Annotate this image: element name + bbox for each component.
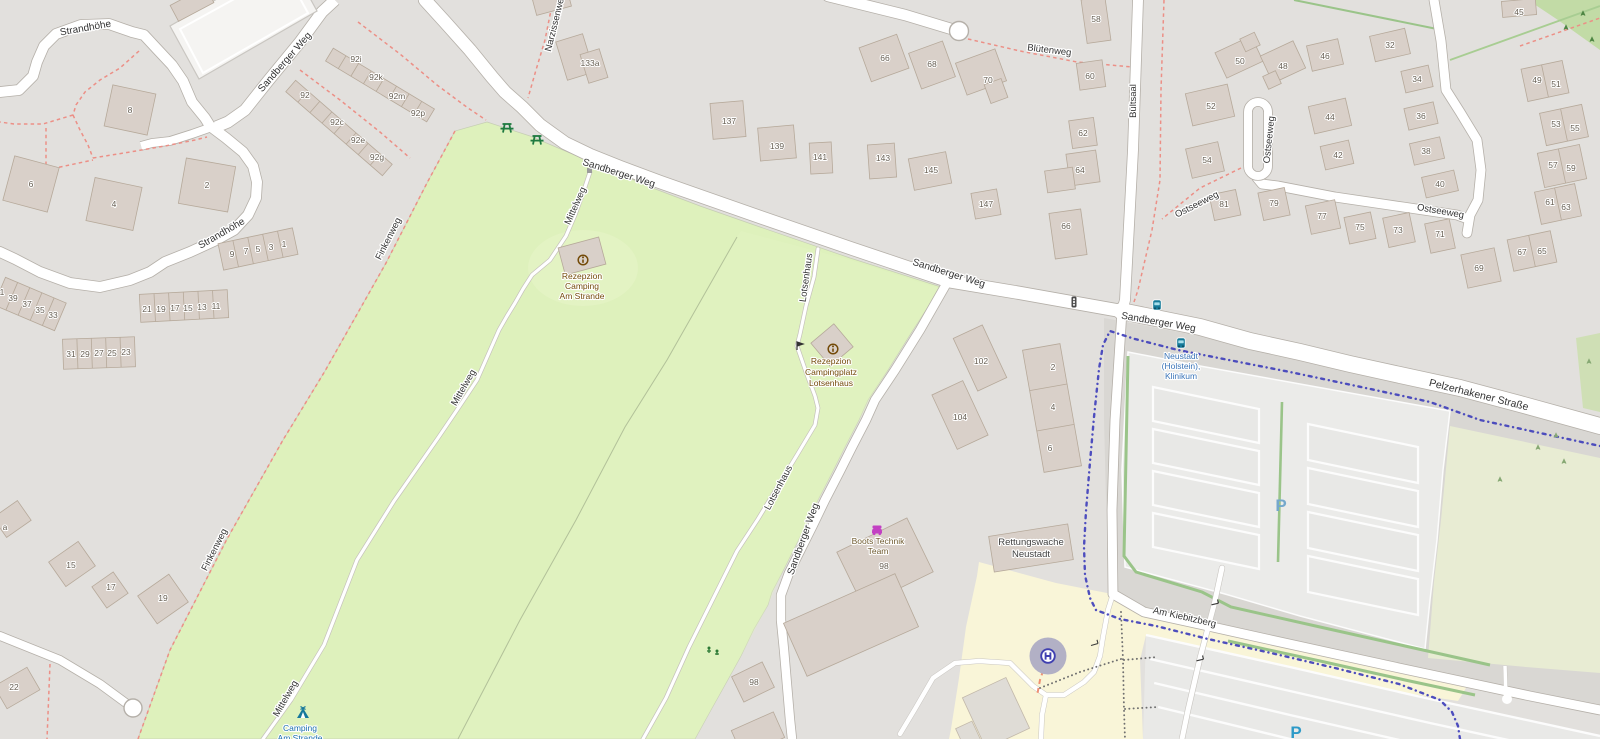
svg-text:1: 1	[282, 239, 287, 249]
svg-text:55: 55	[1570, 123, 1580, 133]
svg-text:58: 58	[1091, 14, 1101, 24]
svg-text:92c: 92c	[330, 117, 344, 127]
svg-text:6: 6	[29, 179, 34, 189]
svg-text:3: 3	[269, 242, 274, 252]
svg-text:36: 36	[1416, 111, 1426, 121]
svg-text:69: 69	[1474, 263, 1484, 273]
svg-text:9: 9	[230, 249, 235, 259]
svg-text:21: 21	[142, 304, 152, 314]
svg-text:139: 139	[770, 141, 784, 151]
svg-text:38: 38	[1421, 146, 1431, 156]
svg-text:4: 4	[1051, 402, 1056, 412]
svg-text:2: 2	[1051, 362, 1056, 372]
svg-text:75: 75	[1355, 222, 1365, 232]
svg-text:27: 27	[94, 348, 104, 358]
svg-text:Rettungswache: Rettungswache	[998, 537, 1063, 548]
svg-text:92g: 92g	[370, 152, 384, 162]
svg-text:79: 79	[1269, 198, 1279, 208]
svg-text:145: 145	[924, 165, 938, 175]
svg-text:5: 5	[256, 244, 261, 254]
svg-text:98: 98	[879, 561, 889, 571]
svg-text:81: 81	[1219, 199, 1229, 209]
svg-text:98: 98	[749, 677, 759, 687]
svg-text:92k: 92k	[369, 72, 383, 82]
svg-text:33: 33	[48, 310, 58, 320]
svg-text:Camping: Camping	[283, 723, 317, 733]
svg-text:37: 37	[22, 299, 32, 309]
svg-text:92: 92	[300, 90, 310, 100]
svg-text:104: 104	[953, 412, 967, 422]
svg-text:70: 70	[983, 75, 993, 85]
svg-text:17: 17	[106, 582, 116, 592]
svg-text:Neustadt: Neustadt	[1012, 549, 1050, 560]
svg-text:19: 19	[158, 593, 168, 603]
svg-text:23: 23	[121, 347, 131, 357]
svg-text:Am Strande: Am Strande	[560, 291, 605, 301]
svg-text:32: 32	[1385, 40, 1395, 50]
svg-text:92i: 92i	[350, 54, 361, 64]
svg-text:P: P	[1275, 496, 1286, 515]
svg-text:46: 46	[1320, 51, 1330, 61]
svg-text:6: 6	[1048, 443, 1053, 453]
svg-text:40: 40	[1435, 179, 1445, 189]
svg-text:2: 2	[205, 180, 210, 190]
svg-text:48: 48	[1278, 61, 1288, 71]
svg-text:54: 54	[1202, 155, 1212, 165]
svg-text:65: 65	[1537, 246, 1547, 256]
svg-text:Bültsaal: Bültsaal	[1128, 84, 1139, 118]
svg-text:Am Strande: Am Strande	[278, 733, 323, 739]
svg-text:92m: 92m	[389, 91, 406, 101]
svg-text:147: 147	[979, 199, 993, 209]
svg-text:60: 60	[1085, 71, 1095, 81]
svg-text:45: 45	[1514, 7, 1524, 17]
svg-text:11: 11	[212, 301, 221, 311]
svg-text:(Holstein),: (Holstein),	[1162, 361, 1201, 371]
svg-text:39: 39	[8, 293, 18, 303]
svg-text:49: 49	[1532, 75, 1542, 85]
svg-text:44: 44	[1325, 112, 1335, 122]
svg-text:P: P	[1290, 723, 1301, 739]
svg-text:a: a	[3, 522, 8, 532]
svg-text:50: 50	[1235, 56, 1245, 66]
svg-text:66: 66	[880, 53, 890, 63]
svg-text:Camping: Camping	[565, 281, 599, 291]
svg-text:62: 62	[1078, 128, 1088, 138]
svg-text:Neustadt: Neustadt	[1164, 351, 1199, 361]
svg-text:61: 61	[1545, 197, 1555, 207]
svg-text:Klinikum: Klinikum	[1165, 371, 1197, 381]
svg-text:29: 29	[80, 349, 90, 359]
svg-text:22: 22	[9, 682, 19, 692]
svg-text:68: 68	[927, 59, 937, 69]
svg-text:34: 34	[1412, 74, 1422, 84]
svg-text:13: 13	[197, 302, 207, 312]
svg-text:77: 77	[1317, 211, 1327, 221]
svg-text:63: 63	[1561, 202, 1571, 212]
svg-text:4: 4	[112, 199, 117, 209]
svg-text:52: 52	[1206, 101, 1216, 111]
svg-text:15: 15	[183, 303, 193, 313]
svg-text:71: 71	[1435, 229, 1445, 239]
svg-text:8: 8	[128, 105, 133, 115]
svg-text:Campingplatz: Campingplatz	[805, 367, 857, 377]
svg-text:137: 137	[722, 116, 736, 126]
svg-text:141: 141	[813, 152, 827, 162]
svg-text:1: 1	[0, 287, 5, 297]
svg-text:92p: 92p	[411, 108, 425, 118]
svg-text:53: 53	[1551, 119, 1561, 129]
svg-text:Rezepzion: Rezepzion	[811, 356, 851, 366]
svg-text:59: 59	[1566, 163, 1576, 173]
svg-text:Team: Team	[868, 546, 889, 556]
svg-text:143: 143	[876, 153, 890, 163]
svg-text:25: 25	[107, 348, 117, 358]
svg-text:17: 17	[170, 303, 180, 313]
svg-text:7: 7	[244, 246, 249, 256]
svg-text:133a: 133a	[581, 58, 600, 68]
svg-text:Boots Technik: Boots Technik	[852, 536, 906, 546]
svg-text:51: 51	[1551, 79, 1561, 89]
svg-text:19: 19	[156, 304, 166, 314]
svg-text:92e: 92e	[351, 135, 365, 145]
svg-text:73: 73	[1393, 225, 1403, 235]
svg-text:57: 57	[1548, 160, 1558, 170]
svg-text:Rezepzion: Rezepzion	[562, 271, 602, 281]
svg-text:66: 66	[1061, 221, 1071, 231]
svg-text:15: 15	[66, 560, 76, 570]
svg-text:67: 67	[1517, 247, 1527, 257]
svg-text:42: 42	[1333, 150, 1343, 160]
svg-text:102: 102	[974, 356, 988, 366]
svg-text:35: 35	[35, 305, 45, 315]
svg-text:31: 31	[66, 349, 76, 359]
svg-text:Lotsenhaus: Lotsenhaus	[809, 378, 853, 388]
svg-text:64: 64	[1075, 165, 1085, 175]
